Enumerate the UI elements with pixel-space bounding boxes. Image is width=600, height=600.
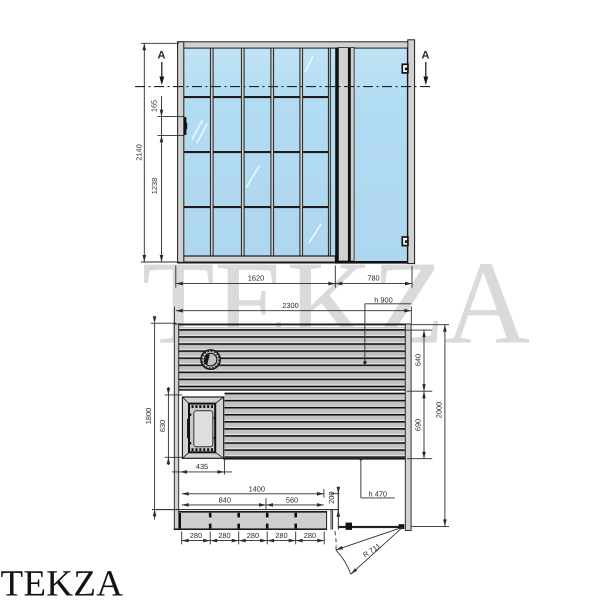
svg-text:165: 165: [149, 100, 158, 112]
svg-text:1400: 1400: [249, 484, 265, 493]
svg-text:2140: 2140: [134, 144, 143, 160]
svg-text:690: 690: [413, 419, 422, 431]
svg-text:R 711: R 711: [361, 541, 382, 559]
svg-text:200: 200: [327, 492, 336, 504]
svg-text:435: 435: [196, 462, 208, 471]
svg-text:840: 840: [219, 495, 231, 504]
svg-text:1800: 1800: [144, 408, 153, 424]
svg-text:A: A: [158, 50, 166, 62]
svg-text:A: A: [422, 50, 430, 62]
svg-text:640: 640: [413, 354, 422, 366]
svg-text:560: 560: [286, 495, 298, 504]
svg-text:280: 280: [304, 531, 316, 540]
svg-text:TEKZA: TEKZA: [1, 563, 124, 600]
svg-text:h 470: h 470: [369, 489, 388, 498]
svg-text:280: 280: [218, 531, 230, 540]
svg-text:1620: 1620: [248, 274, 264, 283]
svg-text:1238: 1238: [150, 178, 159, 194]
svg-text:630: 630: [158, 420, 167, 432]
svg-text:2300: 2300: [282, 301, 298, 310]
svg-text:780: 780: [367, 274, 379, 283]
svg-text:2000: 2000: [435, 402, 444, 418]
svg-text:280: 280: [275, 531, 287, 540]
svg-text:h 900: h 900: [374, 295, 393, 304]
svg-text:280: 280: [247, 531, 259, 540]
svg-text:280: 280: [190, 531, 202, 540]
